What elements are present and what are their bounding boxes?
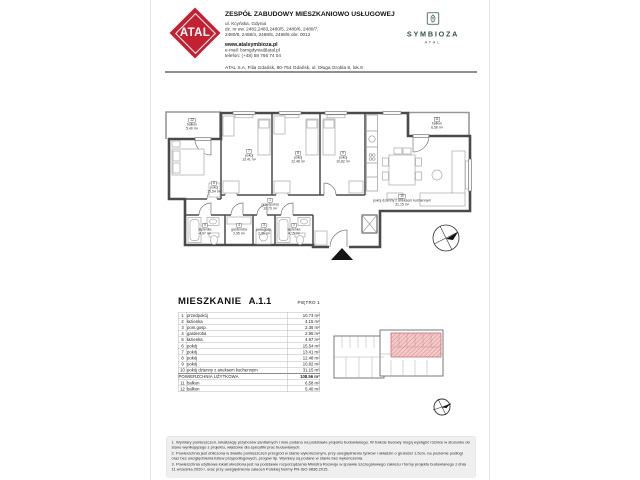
room-label-pokoj-9: 9 pokój 10,82 m² [316, 150, 371, 164]
footnote-2: 2. Powierzchnia jest obliczona w świetle… [172, 451, 471, 461]
room-label-pokoj-7: 7 pokój 13,41 m² [222, 148, 277, 162]
project-title: ZESPÓŁ ZABUDOWY MIESZKANIOWO USŁUGOWEJ [225, 10, 395, 18]
room-label-balkon-12: 12 balkon 5,40 m² [165, 117, 220, 131]
footnote-3: 3. Powierzchnia użytkowa lokali określon… [172, 462, 471, 472]
symbioza-logo: SYMBIOZA ATAL [398, 12, 468, 77]
key-plan [333, 320, 445, 390]
apartment-floor: PIĘTRO 1 [297, 300, 320, 305]
room-label-pokoj-6: 6 pokój 15,54 m² [187, 180, 242, 194]
symbioza-sub: ATAL [398, 40, 468, 45]
apartment-unit: A.1.1 [249, 296, 272, 307]
symbioza-name: SYMBIOZA [398, 31, 468, 39]
floor-plan: 1 przedpokój 10,73 m² 2 łazienka 4,15 m²… [165, 103, 475, 265]
page-right-edge [489, 0, 490, 480]
header-text-block: ZESPÓŁ ZABUDOWY MIESZKANIOWO USŁUGOWEJ u… [225, 10, 395, 75]
room-label-lazienka-5: 5 łazienka 4,97 m² [178, 222, 233, 236]
header-separator [165, 71, 477, 73]
address-line-3: 2480/8, 2468/4, 2468/5, 2468/6 obr. 0012 [225, 32, 395, 37]
room-label-balkon-11: 11 balkon 6,58 m² [410, 116, 465, 130]
keyplan-compass-icon [429, 394, 455, 420]
apartment-label: MIESZKANIE [178, 296, 242, 307]
room-label-pokoj-dzienny: 10 pokój dzienny z aneksem kuchennym 31,… [372, 193, 432, 207]
office-address: ATAL S.A. Filia Gdańsk, 80-754 Gdańsk, u… [225, 65, 395, 71]
room-label-przedpokoj: 1 przedpokój 10,73 m² [243, 197, 298, 211]
footnote-1: 1. Wymiary pomieszczeń, lokalizację przy… [172, 440, 471, 450]
room-row: 12balkon5.40 m² [178, 386, 320, 392]
footer-disclaimer: 1. Wymiary pomieszczeń, lokalizację przy… [166, 436, 476, 480]
entrance-opening [329, 244, 349, 250]
leaf-icon [427, 12, 440, 25]
compass-icon [433, 225, 459, 251]
unit-highlight [391, 333, 441, 357]
apartment-titlebar: MIESZKANIE A.1.1 PIĘTRO 1 [178, 296, 320, 307]
atal-logo-text: ATAL [180, 27, 210, 39]
atal-logo: ATAL [166, 4, 224, 62]
room-area-table: 1przedpokój10.73 m²2łazienka4.15 m²3pom.… [178, 312, 320, 392]
page-left-edge [150, 0, 151, 480]
document-page: ATAL ZESPÓŁ ZABUDOWY MIESZKANIOWO USŁUGO… [0, 0, 640, 480]
room-table-body: 1przedpokój10.73 m²2łazienka4.15 m²3pom.… [178, 312, 320, 392]
installation-shaft [362, 215, 377, 233]
phone-line: telefon: (+48) 58 766 74 04 [225, 53, 395, 58]
